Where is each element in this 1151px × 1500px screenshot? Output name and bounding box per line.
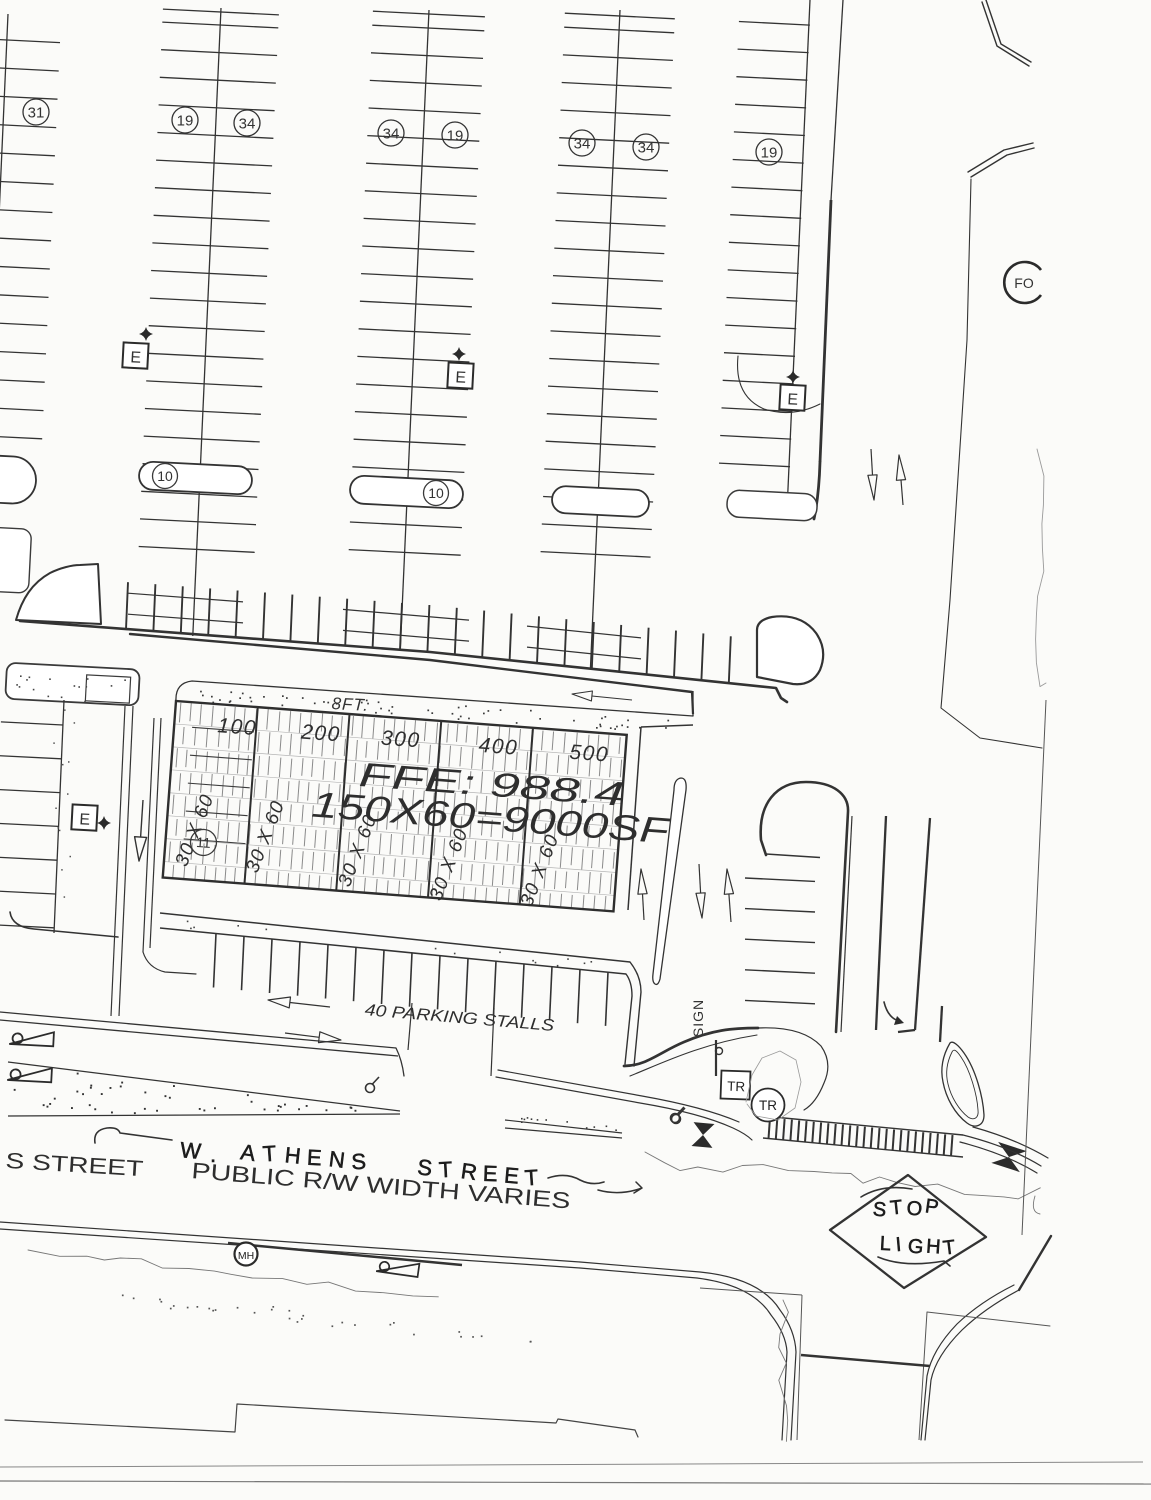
svg-text:O: O	[906, 1197, 923, 1220]
svg-text:L: L	[879, 1233, 891, 1256]
svg-text:34: 34	[574, 136, 591, 153]
svg-text:8FT.: 8FT.	[331, 694, 369, 715]
svg-text:19: 19	[447, 128, 464, 145]
svg-text:E: E	[130, 349, 142, 367]
svg-text:E: E	[79, 811, 91, 829]
svg-text:TR: TR	[727, 1079, 746, 1095]
svg-text:200: 200	[299, 720, 341, 746]
svg-text:TR: TR	[759, 1098, 777, 1113]
svg-text:34: 34	[383, 126, 400, 143]
svg-text:10: 10	[428, 485, 444, 501]
svg-text:34: 34	[638, 140, 655, 157]
svg-text:10: 10	[157, 468, 173, 484]
svg-text:500: 500	[569, 741, 610, 767]
svg-text:MH: MH	[238, 1250, 254, 1262]
svg-text:E: E	[455, 369, 467, 387]
svg-text:19: 19	[761, 145, 778, 162]
svg-text:FO: FO	[1014, 275, 1034, 291]
svg-text:11: 11	[196, 834, 212, 851]
svg-text:100: 100	[217, 714, 258, 740]
svg-text:SIGN: SIGN	[690, 999, 706, 1037]
svg-text:T: T	[889, 1196, 903, 1219]
svg-text:31: 31	[28, 105, 45, 122]
svg-text:H: H	[925, 1236, 941, 1259]
svg-text:19: 19	[177, 113, 194, 130]
svg-text:E: E	[787, 391, 799, 409]
svg-text:300: 300	[380, 727, 421, 753]
svg-text:T: T	[262, 1141, 277, 1167]
svg-text:34: 34	[239, 116, 256, 133]
svg-text:400: 400	[478, 734, 519, 760]
svg-text:G: G	[907, 1235, 925, 1259]
svg-text:S: S	[872, 1198, 887, 1221]
